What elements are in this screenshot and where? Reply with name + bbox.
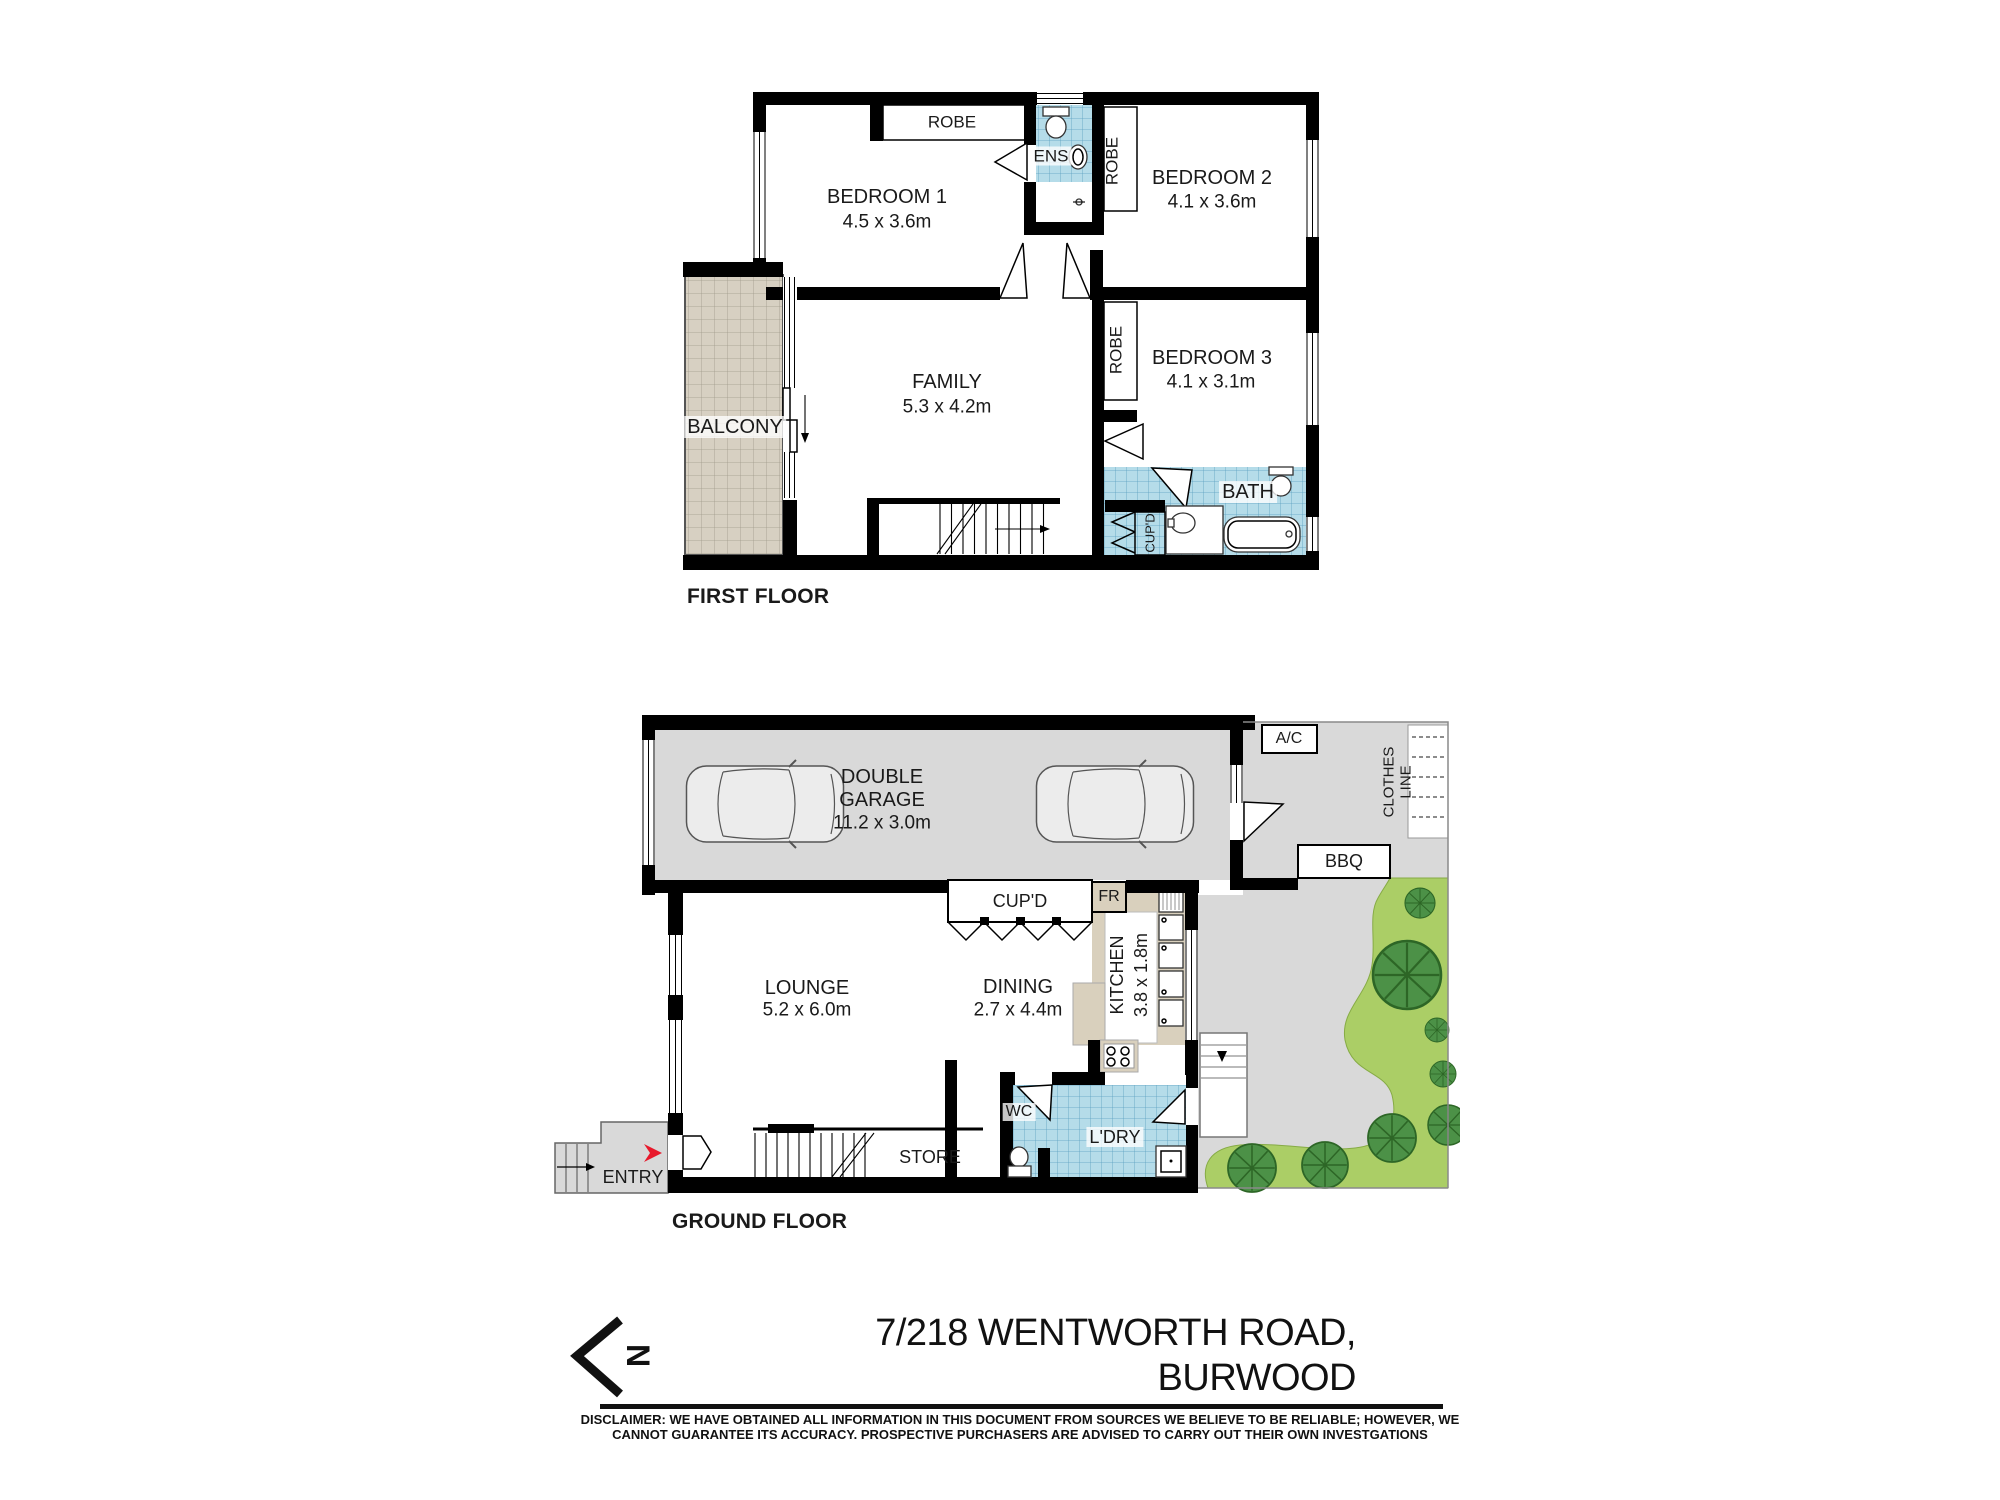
ff-bedroom2-dims: 4.1 x 3.6m — [1168, 193, 1257, 212]
ff-bedroom3-dims: 4.1 x 3.1m — [1167, 373, 1256, 392]
ff-bedroom3-door — [1105, 424, 1143, 459]
property-address: 7/218 WENTWORTH ROAD, BURWOOD — [850, 1311, 1356, 1401]
ff-bedroom2-label: BEDROOM 2 — [1152, 168, 1272, 188]
disclaimer: DISCLAIMER: WE HAVE OBTAINED ALL INFORMA… — [570, 1412, 1470, 1442]
ff-bedroom1-dims: 4.5 x 3.6m — [843, 213, 932, 232]
gf-laundry-label: L'DRY — [1086, 1127, 1143, 1147]
gf-clothes-label-1: CLOTHES — [1382, 747, 1397, 818]
ff-bedroom3-label: BEDROOM 3 — [1152, 348, 1272, 368]
gf-cupboard-label: CUP'D — [993, 892, 1047, 910]
ff-cupboard-label: CUP'D — [1144, 513, 1157, 552]
ff-ens-door — [995, 143, 1027, 180]
gf-lounge-label: LOUNGE — [765, 978, 849, 998]
car-1 — [687, 760, 844, 848]
ff-bath-toilet — [1269, 467, 1293, 475]
disclaimer-line-1: DISCLAIMER: WE HAVE OBTAINED ALL INFORMA… — [570, 1412, 1470, 1427]
gf-wc-label: WC — [1003, 1103, 1036, 1121]
floorplan-page: BEDROOM 1 4.5 x 3.6m ROBE ENS ROBE BEDRO… — [0, 0, 2000, 1500]
gf-dining-dims: 2.7 x 4.4m — [974, 1001, 1063, 1020]
car-2 — [1037, 760, 1194, 848]
footer-divider — [600, 1404, 1443, 1409]
gf-garage-label-2: GARAGE — [839, 790, 925, 810]
address-line-1: 7/218 WENTWORTH ROAD, — [850, 1311, 1356, 1356]
gf-clothes-label-2: LINE — [1399, 765, 1414, 798]
ground-floor-plan — [540, 700, 1460, 1200]
gf-kitchen-dims: 3.8 x 1.8m — [1132, 933, 1150, 1017]
ground-floor-title: GROUND FLOOR — [672, 1210, 847, 1234]
gf-entry-door — [683, 1136, 711, 1169]
ff-family-dims: 5.3 x 4.2m — [903, 398, 992, 417]
ff-robe3-label: ROBE — [1108, 326, 1125, 374]
compass-chevron-icon — [577, 1320, 620, 1394]
compass-north-letter: N — [620, 1344, 655, 1367]
gf-garage-label-1: DOUBLE — [841, 767, 923, 787]
first-floor-title: FIRST FLOOR — [687, 585, 829, 609]
gf-store-label: STORE — [899, 1148, 961, 1166]
gf-entry-label: ENTRY — [603, 1168, 664, 1186]
ff-bedroom1-label: BEDROOM 1 — [827, 187, 947, 207]
gf-dining-label: DINING — [983, 977, 1053, 997]
ff-robe1-label: ROBE — [928, 114, 976, 131]
address-line-2: BURWOOD — [850, 1356, 1356, 1401]
ff-balcony-label: BALCONY — [684, 416, 786, 438]
ff-family-label: FAMILY — [912, 372, 982, 392]
gf-kitchen-label: KITCHEN — [1108, 935, 1126, 1014]
ff-hall-double-door — [1000, 243, 1027, 298]
ff-robe2-label: ROBE — [1104, 137, 1121, 185]
compass: N — [565, 1312, 655, 1407]
gf-wc-toilet — [1010, 1147, 1028, 1167]
ff-ens-label: ENS — [1031, 147, 1072, 166]
ff-bath-label: BATH — [1219, 481, 1277, 503]
gf-bbq-label: BBQ — [1325, 852, 1363, 870]
ff-balcony-tiles — [685, 275, 783, 555]
gf-back-steps — [1200, 1033, 1247, 1137]
gf-garage-dims: 11.2 x 3.0m — [833, 814, 931, 833]
disclaimer-line-2: CANNOT GUARANTEE ITS ACCURACY. PROSPECTI… — [570, 1427, 1470, 1442]
ff-ens-toilet — [1043, 107, 1069, 116]
gf-lounge-dims: 5.2 x 6.0m — [763, 1001, 852, 1020]
ff-stairs — [937, 504, 1050, 554]
gf-ac-label: A/C — [1276, 731, 1303, 747]
gf-fridge-label: FR — [1098, 889, 1119, 905]
